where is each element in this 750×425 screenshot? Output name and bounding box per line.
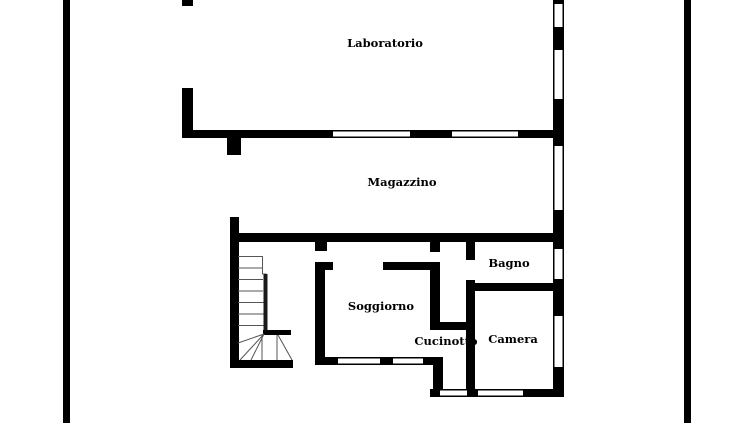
right-border-line (684, 0, 691, 423)
room-label-soggiorno: Soggiorno (348, 299, 415, 313)
wall-pier (227, 138, 241, 155)
wall-segment (410, 130, 452, 138)
wall-segment (467, 389, 478, 397)
window (452, 130, 518, 138)
window (553, 249, 564, 279)
window (393, 357, 423, 365)
wall-segment (466, 283, 564, 291)
wall-segment (553, 0, 564, 4)
staircase (238, 257, 292, 361)
window (338, 357, 380, 365)
window (553, 316, 564, 367)
room-labels: Laboratorio Magazzino Bagno Soggiorno Cu… (347, 36, 538, 348)
wall-segment (230, 217, 239, 368)
room-label-bagno: Bagno (488, 256, 530, 270)
room-label-camera: Camera (488, 332, 538, 346)
window (478, 389, 523, 397)
room-label-laboratorio: Laboratorio (347, 36, 423, 50)
wall-segment (182, 130, 333, 138)
wall-segment (466, 242, 475, 260)
window (553, 146, 564, 210)
wall-segment (553, 99, 564, 146)
wall-segment (315, 262, 325, 365)
wall-segment (553, 210, 564, 249)
wall-segment (230, 233, 564, 242)
door-jamb (315, 242, 327, 251)
wall-segment (315, 357, 338, 365)
stair-landing-edge (263, 330, 291, 335)
wall-segment (553, 27, 564, 50)
wall-segment (230, 360, 293, 368)
stair-stringer (264, 274, 268, 332)
window (553, 4, 564, 27)
door-jamb (430, 242, 440, 252)
wall-segment (553, 279, 564, 316)
wall-segment (553, 367, 564, 397)
floor-plan-canvas: Laboratorio Magazzino Bagno Soggiorno Cu… (0, 0, 750, 425)
window (440, 389, 467, 397)
floor-plan-page: Laboratorio Magazzino Bagno Soggiorno Cu… (0, 0, 750, 425)
wall-segment (430, 389, 440, 397)
wall-segment (430, 262, 440, 330)
wall-segment (430, 322, 467, 330)
room-label-magazzino: Magazzino (367, 175, 436, 189)
room-label-cucinotto: Cucinotto (414, 334, 478, 348)
left-border-line (63, 0, 70, 423)
window (553, 50, 564, 99)
wall-segment (182, 0, 193, 6)
wall-segment (380, 357, 393, 365)
window (333, 130, 410, 138)
